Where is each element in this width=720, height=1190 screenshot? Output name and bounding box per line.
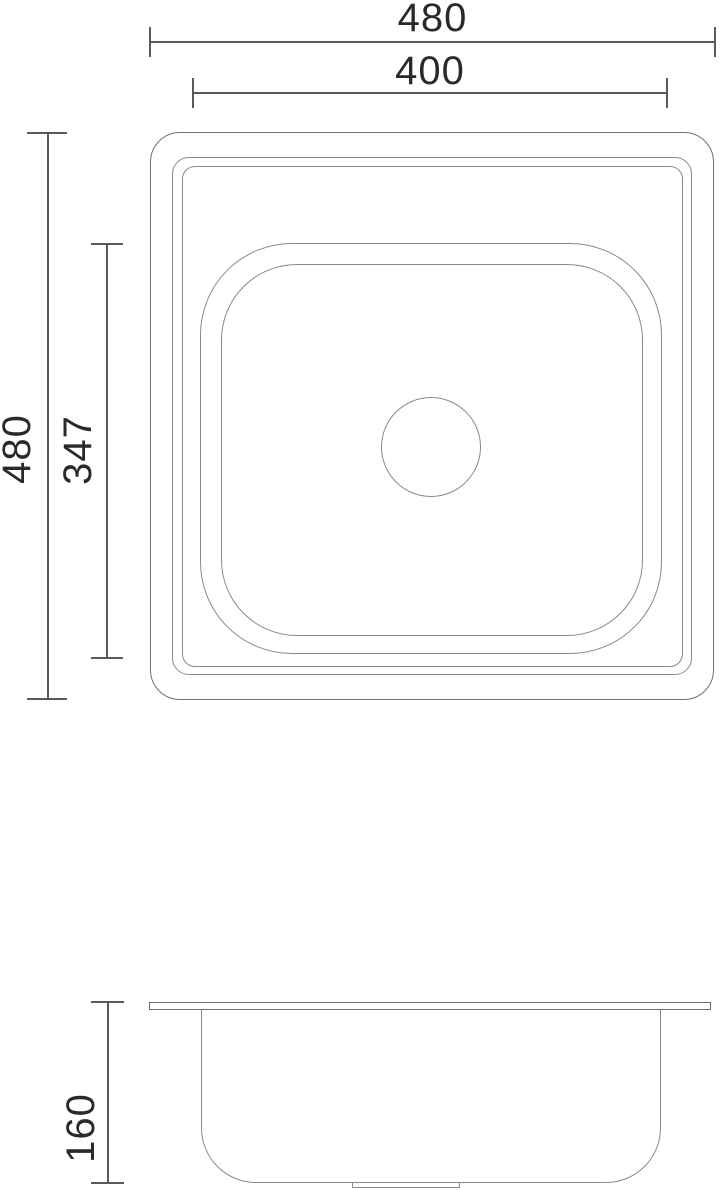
dim-line xyxy=(107,1002,109,1183)
dim-tick xyxy=(91,243,123,245)
side-view-rim xyxy=(149,1002,711,1010)
dim-tick xyxy=(91,1182,124,1184)
dim-tick xyxy=(27,132,67,134)
side-view-drain-bump xyxy=(352,1183,460,1188)
dim-label-overall-width: 480 xyxy=(150,0,715,38)
dim-label-depth: 160 xyxy=(61,1093,101,1163)
dim-tick xyxy=(149,27,151,57)
drain-circle xyxy=(381,397,481,497)
dim-label-overall-length: 480 xyxy=(0,414,37,484)
dim-tick xyxy=(714,27,716,57)
dim-tick xyxy=(192,78,194,108)
dim-line xyxy=(192,92,668,94)
sink-technical-drawing: 480 400 480 347 160 xyxy=(0,0,720,1190)
dim-label-bowl-length: 347 xyxy=(58,415,98,485)
dim-line xyxy=(149,41,715,43)
dim-tick xyxy=(91,1001,124,1003)
dim-line xyxy=(106,244,108,658)
dim-line xyxy=(47,133,49,699)
dim-label-bowl-width: 400 xyxy=(193,51,667,91)
dim-tick xyxy=(666,78,668,108)
dim-tick xyxy=(27,698,67,700)
dim-tick xyxy=(91,657,123,659)
side-view-bowl xyxy=(201,1010,661,1183)
